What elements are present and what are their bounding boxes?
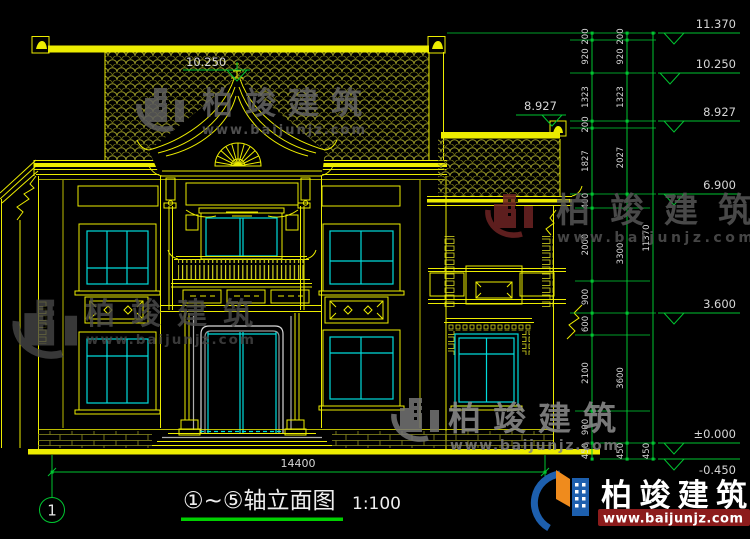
svg-text:±0.000: ±0.000 xyxy=(693,427,736,441)
carved-bracket xyxy=(186,210,298,217)
watermark-bottom-right: 柏竣建筑 www.baijunjz.com xyxy=(534,470,750,528)
svg-text:600: 600 xyxy=(581,316,591,332)
svg-text:920: 920 xyxy=(616,48,626,64)
svg-text:www.baijunjz.com: www.baijunjz.com xyxy=(557,230,750,246)
svg-text:3600: 3600 xyxy=(616,367,626,389)
svg-text:2027: 2027 xyxy=(616,147,626,169)
elevation-canvas: 10.250 8.927 200 920 1323 200 1827 400 2… xyxy=(0,0,750,539)
svg-text:11.370: 11.370 xyxy=(696,17,736,31)
scale-label: 1:100 xyxy=(352,494,401,514)
brick-base-left xyxy=(38,431,152,448)
window-2f-right xyxy=(319,224,404,295)
level-marker-icon xyxy=(660,73,680,84)
diamond-lattice-center xyxy=(186,183,298,205)
svg-text:www.baijunjz.com: www.baijunjz.com xyxy=(603,512,745,527)
level-marker-icon xyxy=(664,33,684,44)
svg-text:200: 200 xyxy=(581,116,591,132)
title-underline xyxy=(181,518,343,522)
window-1f-right xyxy=(319,330,404,410)
drawing-title: ①~⑤轴立面图 1:100 xyxy=(181,488,401,521)
axis-bubble-1: 1 xyxy=(40,478,65,523)
svg-text:10.250: 10.250 xyxy=(696,57,736,71)
overall-dimension: 14400 xyxy=(48,455,549,478)
svg-text:-0.450: -0.450 xyxy=(699,463,736,477)
svg-text:8.927: 8.927 xyxy=(703,105,736,119)
svg-text:10.250: 10.250 xyxy=(186,55,226,69)
svg-text:200: 200 xyxy=(616,28,626,44)
svg-text:450: 450 xyxy=(642,443,652,459)
svg-text:www.baijunjz.com: www.baijunjz.com xyxy=(86,332,256,348)
svg-text:www.baijunjz.com: www.baijunjz.com xyxy=(202,123,367,138)
level-marker-icon xyxy=(664,459,684,470)
left-wing-eave xyxy=(0,160,38,448)
wing-canopy xyxy=(444,319,534,356)
svg-text:920: 920 xyxy=(581,48,591,64)
level-markers-right: 11.370 10.250 8.927 6.900 3.600 ±0.000 -… xyxy=(658,17,740,477)
baijun-logo-color-icon xyxy=(534,470,589,528)
ridge-ornament-icon xyxy=(32,37,49,54)
level-marker-icon xyxy=(664,443,684,454)
svg-text:2100: 2100 xyxy=(581,362,591,384)
eave-corbel xyxy=(17,176,36,220)
svg-text:3.600: 3.600 xyxy=(703,297,736,311)
svg-text:6.900: 6.900 xyxy=(703,178,736,192)
window-2f-left xyxy=(75,224,160,295)
title-text: ①~⑤轴立面图 xyxy=(183,488,336,514)
svg-text:14400: 14400 xyxy=(281,457,316,470)
svg-text:柏竣建筑: 柏竣建筑 xyxy=(601,478,747,514)
level-wing-ridge: 8.927 xyxy=(516,99,566,126)
svg-text:1827: 1827 xyxy=(581,150,591,172)
lattice-bands xyxy=(78,183,400,217)
hex-lattice-left xyxy=(78,186,158,206)
level-marker-icon xyxy=(664,313,684,324)
svg-text:8.927: 8.927 xyxy=(524,99,557,113)
ridge-ornament-icon xyxy=(428,37,445,54)
svg-text:900: 900 xyxy=(581,289,591,305)
baijun-logo-icon xyxy=(16,300,77,356)
ornate-panel-right xyxy=(325,297,388,323)
level-marker-icon xyxy=(664,121,684,132)
wing-roof-tiles xyxy=(438,139,560,196)
svg-text:1323: 1323 xyxy=(581,86,591,108)
cad-elevation-screenshot: 10.250 8.927 200 920 1323 200 1827 400 2… xyxy=(0,0,750,539)
hex-lattice-right xyxy=(322,186,400,206)
svg-text:1323: 1323 xyxy=(616,86,626,108)
svg-text:www.baijunjz.com: www.baijunjz.com xyxy=(450,438,620,454)
svg-text:1: 1 xyxy=(47,502,57,520)
svg-text:200: 200 xyxy=(581,28,591,44)
